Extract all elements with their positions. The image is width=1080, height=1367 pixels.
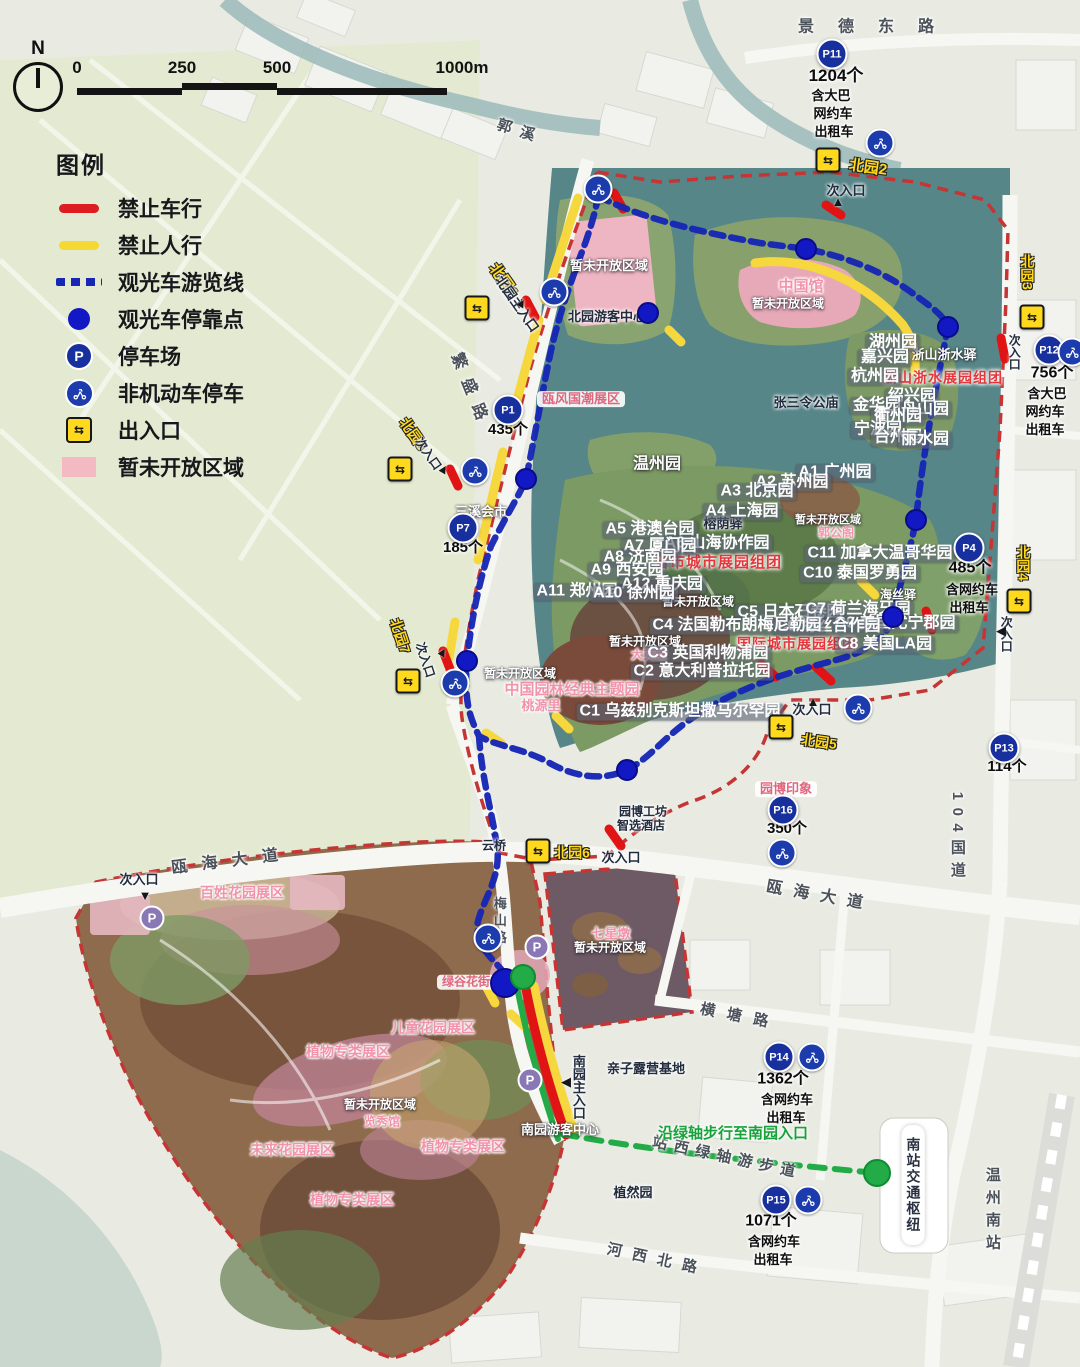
scale-tick: 1000m — [436, 58, 489, 78]
legend-item-gate: ⇆出入口 — [56, 416, 244, 444]
compass-n-letter: N — [12, 38, 64, 60]
scale-segment — [77, 88, 182, 95]
legend-item-p: P停车场 — [56, 342, 244, 370]
legend-item-label: 禁止车行 — [118, 193, 202, 223]
red-swatch — [59, 204, 99, 213]
legend-item-yellow: 禁止人行 — [56, 231, 244, 259]
scale-bar: 02505001000m — [72, 50, 552, 100]
legend-title: 图例 — [56, 146, 244, 180]
scale-segment — [182, 83, 277, 90]
legend-item-label: 禁止人行 — [118, 230, 202, 260]
scale-tick: 250 — [168, 58, 196, 78]
legend-item-label: 非机动车停车 — [118, 378, 244, 408]
legend-swatch-cell — [56, 241, 102, 250]
legend-item-blueline: 观光车游览线 — [56, 268, 244, 296]
map-canvas: 景德东路郭溪繁盛路瓯海大道瓯海大道横塘路河西北路104国道温州南站梅山路站西绿轴… — [0, 0, 1080, 1367]
scale-tick: 0 — [72, 58, 81, 78]
legend-item-label: 停车场 — [118, 341, 181, 371]
legend-swatch-cell — [56, 278, 102, 286]
legend-item-label: 观光车停靠点 — [118, 304, 244, 334]
scale-segment — [277, 88, 447, 95]
pink-swatch — [62, 457, 96, 477]
yellow-swatch — [59, 241, 99, 250]
legend-item-pink: 暂未开放区域 — [56, 453, 244, 481]
legend-item-bluedot: 观光车停靠点 — [56, 305, 244, 333]
legend-item-red: 禁止车行 — [56, 194, 244, 222]
legend-swatch-cell — [56, 308, 102, 330]
scooter-swatch — [65, 379, 94, 408]
p-swatch: P — [65, 342, 93, 370]
legend-item-label: 观光车游览线 — [118, 267, 244, 297]
bluedot-swatch — [68, 308, 90, 330]
legend-swatch-cell: ⇆ — [56, 417, 102, 443]
legend-swatch-cell — [56, 457, 102, 477]
legend-panel: 图例 禁止车行禁止人行观光车游览线观光车停靠点P停车场非机动车停车⇆出入口暂未开… — [56, 146, 244, 490]
legend-swatch-cell — [56, 379, 102, 408]
legend-items: 禁止车行禁止人行观光车游览线观光车停靠点P停车场非机动车停车⇆出入口暂未开放区域 — [56, 194, 244, 481]
gate-swatch: ⇆ — [66, 417, 92, 443]
blueline-swatch — [56, 278, 102, 286]
compass-north: N — [12, 38, 64, 112]
legend-swatch-cell — [56, 204, 102, 213]
legend-swatch-cell: P — [56, 342, 102, 370]
compass-dial — [13, 62, 63, 112]
scale-tick: 500 — [263, 58, 291, 78]
legend-item-label: 暂未开放区域 — [118, 452, 244, 482]
legend-item-label: 出入口 — [118, 415, 181, 445]
legend-item-scooter: 非机动车停车 — [56, 379, 244, 407]
